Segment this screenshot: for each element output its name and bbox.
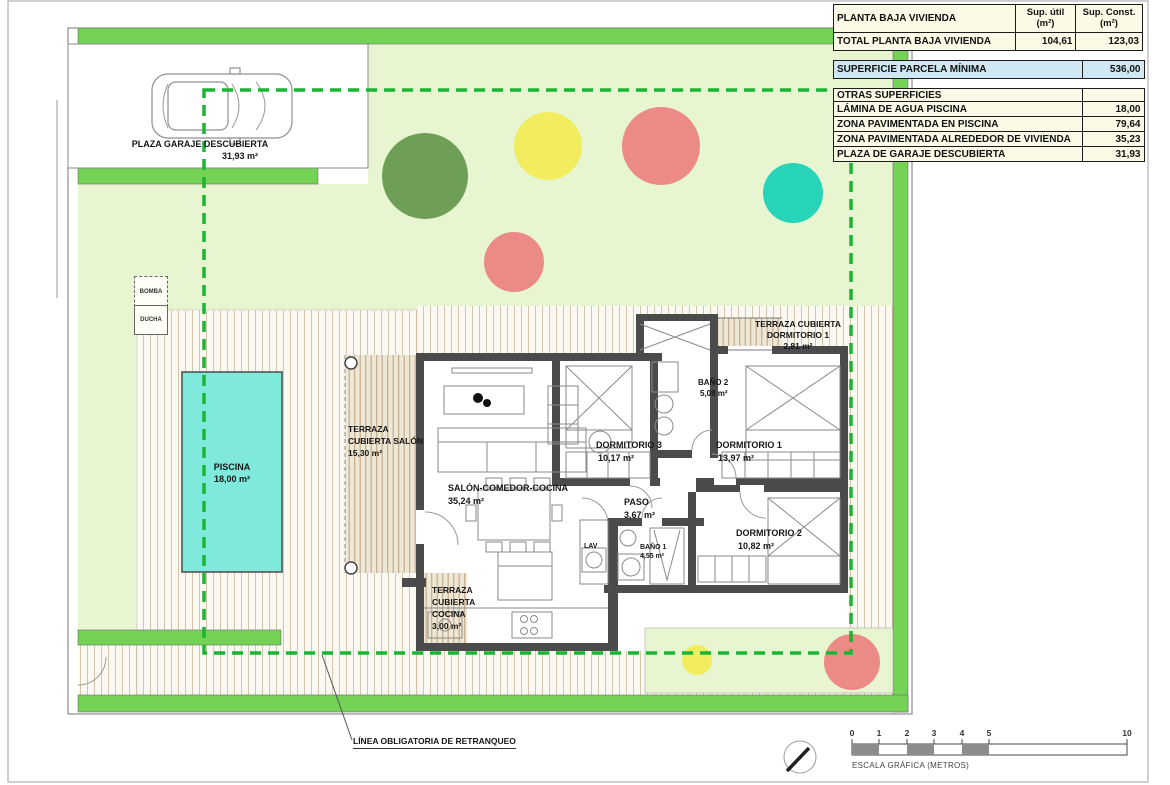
table-row: LÁMINA DE AGUA PISCINA 18,00	[833, 101, 1145, 117]
tree-salmon	[484, 232, 544, 292]
hedge-mid	[78, 168, 318, 184]
label-bedroom1-name: DORMITORIO 1	[716, 440, 782, 450]
label-hall-name: PASO	[624, 497, 649, 507]
table-cell: 123,03	[1075, 32, 1143, 51]
scale-tick: 2	[897, 728, 917, 738]
scale-tick: 0	[842, 728, 862, 738]
tree-teal	[763, 163, 823, 223]
label-pool-name: PISCINA	[192, 462, 272, 472]
table-cell: 79,64	[1082, 116, 1145, 132]
site-plan-page: PLAZA GARAJE DESCUBIERTA 31,93 m² BOMBA …	[0, 0, 1170, 785]
scale-caption: ESCALA GRÁFICA (METROS)	[852, 761, 969, 770]
label-terrace-kitchen: TERRAZA	[432, 586, 473, 596]
label-bath2-area: 5,08 m²	[700, 390, 728, 399]
table-header-cell: PLANTA BAJA VIVIENDA	[833, 4, 1016, 33]
label-hall-area: 3,67 m²	[624, 510, 655, 520]
table-header-cell: Sup. Const. (m²)	[1075, 4, 1143, 33]
tree-salmon	[622, 107, 700, 185]
label-bedroom2-name: DORMITORIO 2	[736, 528, 802, 538]
terrace-column	[345, 562, 357, 574]
label-bedroom3-area: 10,17 m²	[598, 453, 634, 463]
label-bath1-name: BAÑO 1	[640, 544, 666, 552]
scale-tick: 3	[924, 728, 944, 738]
table-row: PLAZA DE GARAJE DESCUBIERTA 31,93	[833, 146, 1145, 162]
car-top-view	[152, 68, 292, 144]
table-cell: 18,00	[1082, 101, 1145, 117]
table-cell: 104,61	[1015, 32, 1077, 51]
hedge-top	[78, 28, 908, 44]
label-garage-name: PLAZA GARAJE DESCUBIERTA	[118, 139, 282, 149]
label-laundry: LAV	[584, 543, 597, 551]
scale-tick: 10	[1117, 728, 1137, 738]
label-terrace-bed1: TERRAZA CUBIERTA	[748, 320, 848, 330]
terrace-column	[345, 357, 357, 369]
label-garage-area: 31,93 m²	[200, 151, 280, 161]
tree-yellow	[514, 112, 582, 180]
label-terrace-kitchen: CUBIERTA	[432, 598, 475, 608]
label-pool-area: 18,00 m²	[192, 474, 272, 484]
label-bath1-area: 4,55 m²	[640, 553, 664, 561]
label-terrace-kitchen-area: 3,00 m²	[432, 622, 461, 632]
hedge-mid	[78, 630, 281, 645]
scale-tick: 4	[952, 728, 972, 738]
tree-yellow-small	[682, 645, 712, 675]
table-cell: 35,23	[1082, 131, 1145, 147]
paved-deck	[848, 353, 895, 628]
label-bedroom1-area: 13,97 m²	[718, 453, 754, 463]
tree-green	[382, 133, 468, 219]
label-terrace-salon: TERRAZA	[348, 425, 389, 435]
label-terrace-salon-area: 15,30 m²	[348, 449, 382, 459]
label-terrace-kitchen: COCINA	[432, 610, 466, 620]
table-cell: LÁMINA DE AGUA PISCINA	[833, 101, 1083, 117]
table-cell: 31,93	[1082, 146, 1145, 162]
tree-salmon-small	[824, 634, 880, 690]
label-terrace-bed1-area: 2,81 m²	[748, 342, 848, 352]
label-bath2-name: BAÑO 2	[698, 379, 728, 388]
table-cell: 536,00	[1082, 60, 1145, 79]
table-row: ZONA PAVIMENTADA ALREDEDOR DE VIVIENDA 3…	[833, 131, 1145, 147]
scale-tick: 1	[869, 728, 889, 738]
label-bedroom3-name: DORMITORIO 3	[596, 440, 662, 450]
label-livingroom-name: SALÓN-COMEDOR-COCINA	[448, 483, 568, 493]
table-row-total: TOTAL PLANTA BAJA VIVIENDA 104,61 123,03	[833, 32, 1143, 51]
terrace-salon	[345, 355, 418, 573]
table-header-row: PLANTA BAJA VIVIENDA Sup. útil (m²) Sup.…	[833, 4, 1143, 33]
label-terrace-bed1: DORMITORIO 1	[748, 331, 848, 341]
label-ducha: DUCHA	[134, 305, 168, 335]
label-bomba: BOMBA	[134, 276, 168, 307]
paved-deck	[78, 645, 137, 695]
table-cell: TOTAL PLANTA BAJA VIVIENDA	[833, 32, 1016, 51]
table-row-parcela: SUPERFICIE PARCELA MÍNIMA 536,00	[833, 60, 1145, 79]
table-cell: ZONA PAVIMENTADA ALREDEDOR DE VIVIENDA	[833, 131, 1083, 147]
table-cell: SUPERFICIE PARCELA MÍNIMA	[833, 60, 1083, 79]
garden-lawn	[78, 315, 137, 645]
label-terrace-salon: CUBIERTA SALÓN	[348, 437, 423, 447]
hedge-bottom	[78, 695, 908, 712]
label-livingroom-area: 35,24 m²	[448, 496, 484, 506]
table-row: ZONA PAVIMENTADA EN PISCINA 79,64	[833, 116, 1145, 132]
scale-tick: 5	[979, 728, 999, 738]
label-bedroom2-area: 10,82 m²	[738, 541, 774, 551]
table-cell: ZONA PAVIMENTADA EN PISCINA	[833, 116, 1083, 132]
table-header-cell: Sup. útil (m²)	[1015, 4, 1077, 33]
table-cell: PLAZA DE GARAJE DESCUBIERTA	[833, 146, 1083, 162]
label-setback-line: LÍNEA OBLIGATORIA DE RETRANQUEO	[353, 737, 516, 749]
